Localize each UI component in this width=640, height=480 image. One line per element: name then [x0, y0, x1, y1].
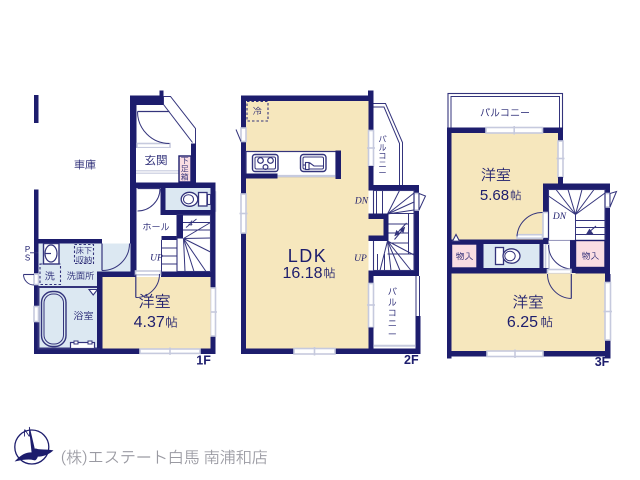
- svg-text:DN: DN: [354, 197, 369, 207]
- svg-text:1F: 1F: [196, 354, 211, 368]
- svg-text:LDK: LDK: [288, 246, 328, 266]
- svg-text:S: S: [25, 254, 30, 263]
- svg-text:4.37: 4.37: [134, 314, 165, 331]
- svg-text:UP: UP: [354, 254, 367, 264]
- svg-text:DN: DN: [552, 212, 567, 222]
- svg-text:3F: 3F: [595, 355, 610, 369]
- svg-text:16.18: 16.18: [282, 265, 322, 282]
- svg-text:N: N: [23, 427, 31, 439]
- svg-text:UP: UP: [150, 254, 163, 264]
- svg-text:2F: 2F: [404, 353, 419, 367]
- svg-text:5.68: 5.68: [480, 187, 509, 204]
- svg-text:6.25: 6.25: [507, 314, 538, 331]
